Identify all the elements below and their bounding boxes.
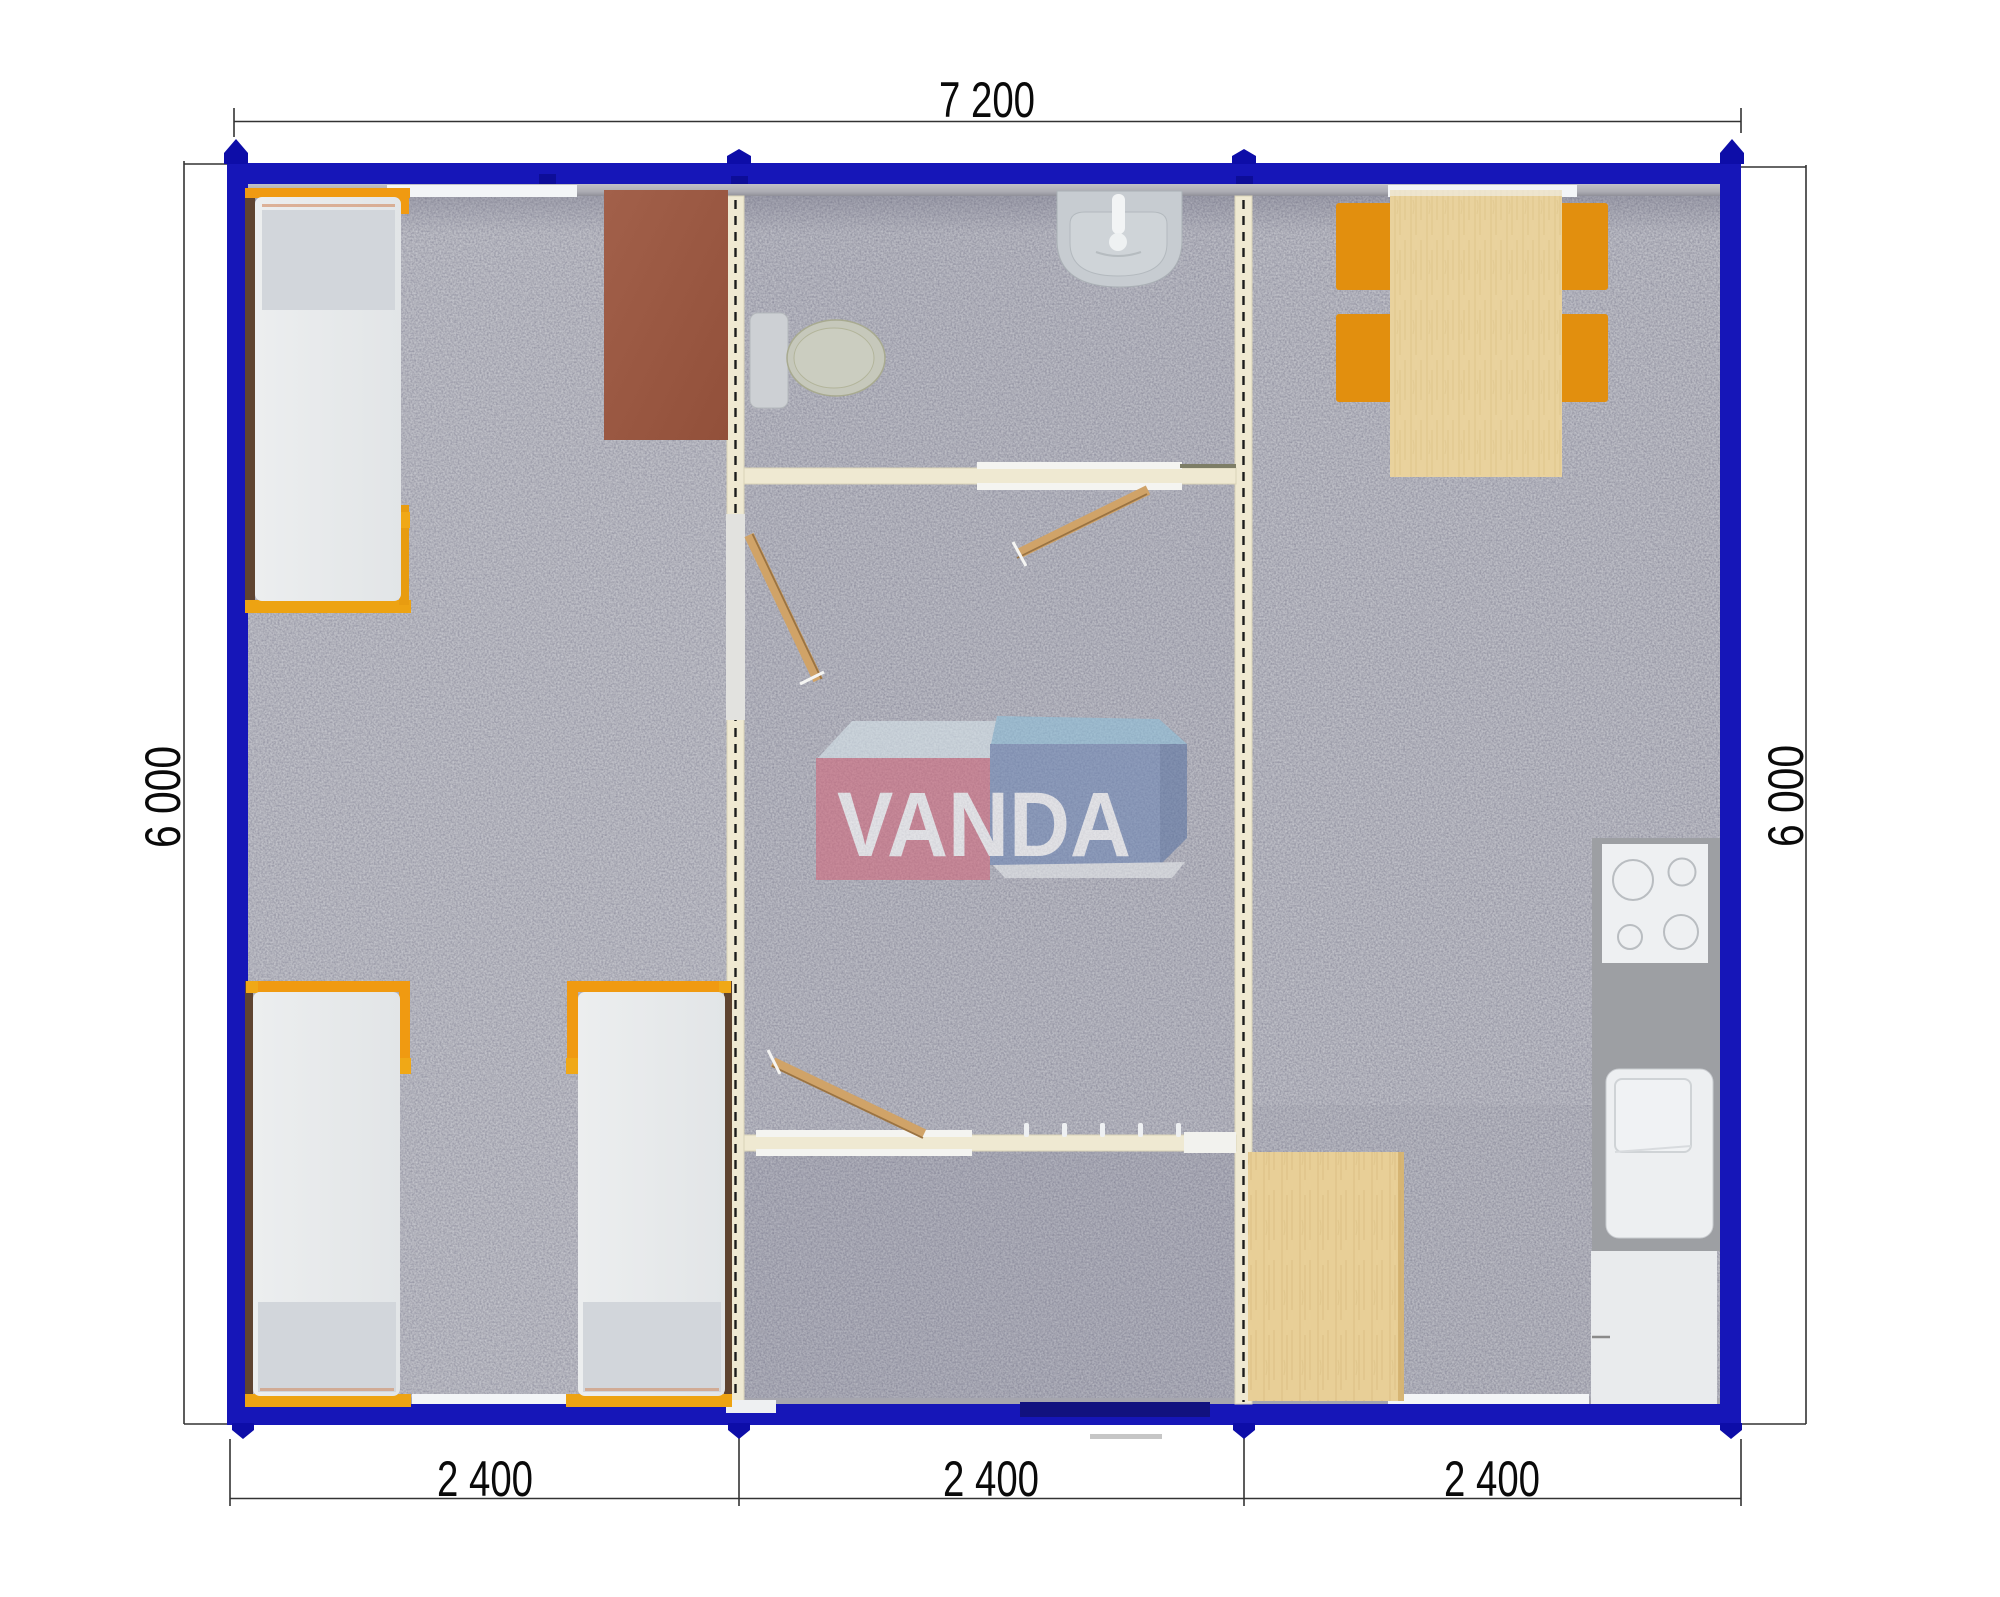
svg-text:6 000: 6 000	[135, 746, 191, 848]
svg-text:2 400: 2 400	[437, 1451, 533, 1507]
svg-text:7 200: 7 200	[939, 72, 1035, 128]
svg-text:2 400: 2 400	[1444, 1451, 1540, 1507]
svg-text:2 400: 2 400	[943, 1451, 1039, 1507]
svg-text:VANDA: VANDA	[837, 774, 1131, 876]
svg-text:6 000: 6 000	[1758, 745, 1814, 847]
